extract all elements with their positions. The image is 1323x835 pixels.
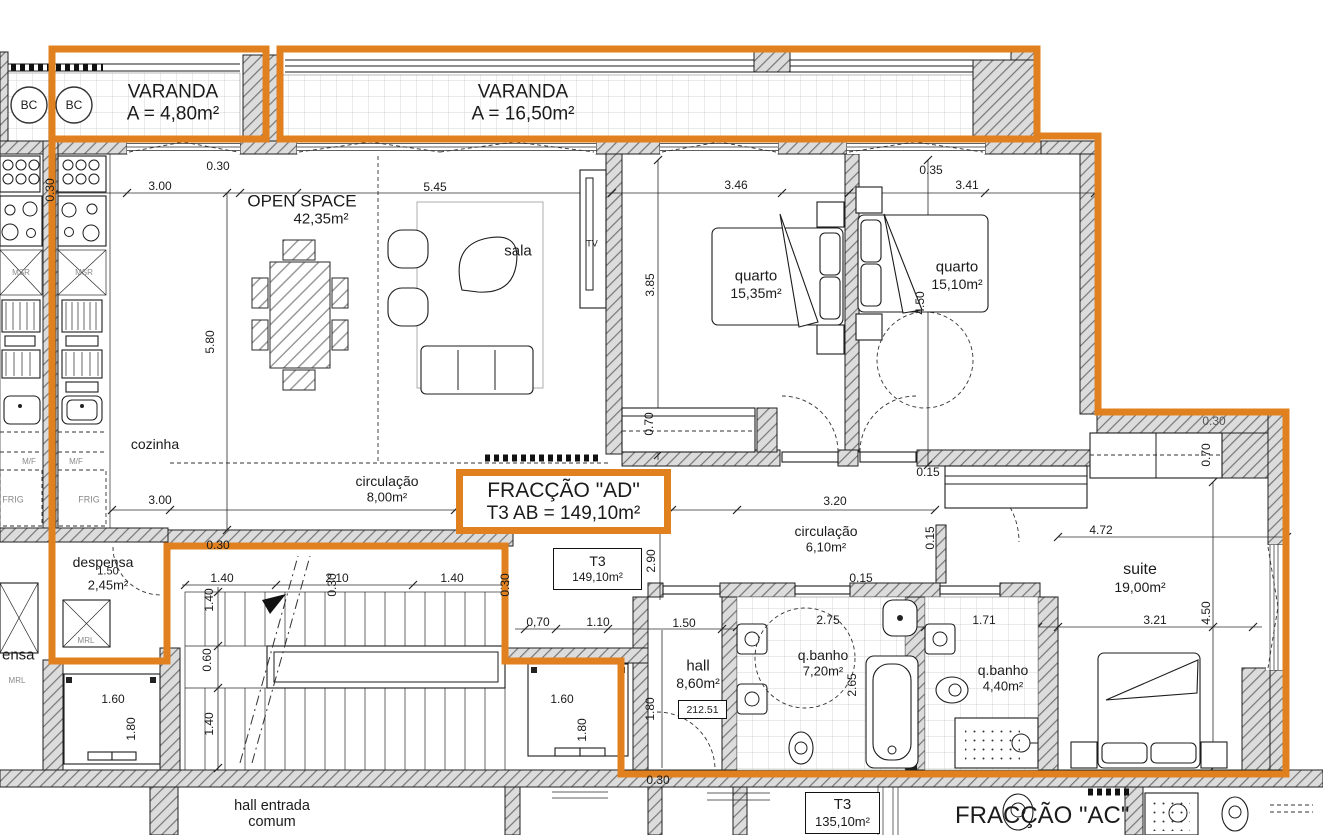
despensa-area: 2,45m² xyxy=(88,579,128,592)
dim-070-q1: 0.70 xyxy=(643,412,655,435)
despensa-neighbor: ensa xyxy=(2,648,35,663)
t3-tag-area: 149,10m² xyxy=(572,570,623,584)
varanda-main-area: A = 16,50m² xyxy=(472,105,575,124)
mf-label-2: M/F xyxy=(22,458,36,466)
dim-top-545: 5.45 xyxy=(423,181,446,193)
fraction-ad-name: FRACÇÃO "AD" xyxy=(487,479,640,503)
dim-450-q2: 4.50 xyxy=(914,291,926,314)
common-hall-label: hall entrada comum xyxy=(234,799,310,831)
mf-label-1: M/F xyxy=(69,458,83,466)
t3-lower-area-tag: T3 135,10m² xyxy=(805,792,880,834)
dim-top-346: 3.46 xyxy=(724,179,747,191)
msr-label-2: MSR xyxy=(12,269,30,277)
dim-top-030: 0.30 xyxy=(206,160,229,172)
cozinha-label: cozinha xyxy=(131,437,179,451)
t3-area-tag: T3 149,10m² xyxy=(553,548,642,590)
common-hall-line1: hall entrada xyxy=(234,799,310,815)
dim-015-c: 0.15 xyxy=(849,572,872,584)
bc-circle-left-label: BC xyxy=(21,99,38,111)
varanda-main-name: VARANDA xyxy=(478,83,568,102)
quarto2-area: 15,10m² xyxy=(931,277,982,291)
sala-label: sala xyxy=(504,244,532,259)
dim-265: 2.65 xyxy=(846,673,858,696)
t3-lower-type: T3 xyxy=(834,796,852,814)
suite-name: suite xyxy=(1123,562,1157,578)
dim-140-b: 1.40 xyxy=(440,572,463,584)
dim-180-l: 1.80 xyxy=(125,717,137,740)
circulacao1-area: 8,00m² xyxy=(367,491,407,504)
dim-top-035: 0.35 xyxy=(919,164,942,176)
dim-450-suite: 4.50 xyxy=(1200,601,1212,624)
t3-lower-area: 135,10m² xyxy=(815,814,870,830)
quarto1-area: 15,35m² xyxy=(730,286,781,300)
dim-210: 2.10 xyxy=(325,572,348,584)
banho2-area: 4,40m² xyxy=(983,680,1023,693)
common-hall-line2: comum xyxy=(234,815,310,831)
tv-label: TV xyxy=(586,240,598,249)
varanda-left-area: A = 4,80m² xyxy=(127,105,219,124)
dim-320: 3.20 xyxy=(823,495,846,507)
dim-580: 5.80 xyxy=(204,330,216,353)
dim-030-left: 0.30 xyxy=(44,178,56,201)
banho2-name: q.banho xyxy=(978,663,1029,677)
dim-top-341: 3.41 xyxy=(955,179,978,191)
dim-140-v1: 1.40 xyxy=(203,588,215,611)
circulacao2-name: circulação xyxy=(794,524,857,538)
floor-plan-sheet: VARANDAA = 4,80m²VARANDAA = 16,50m²OPEN … xyxy=(0,0,1323,835)
frig-label-2: FRIG xyxy=(2,496,24,505)
circulacao1-name: circulação xyxy=(355,474,418,488)
dim-385: 3.85 xyxy=(644,273,656,296)
quarto2-name: quarto xyxy=(936,260,979,275)
hall-name: hall xyxy=(686,659,709,674)
dim-015-b: 0.15 xyxy=(924,526,936,549)
dim-160-l: 1.60 xyxy=(101,693,124,705)
dim-150-desp: 1.50 xyxy=(97,567,118,578)
mrl-label-2: MRL xyxy=(9,677,26,685)
dim-110-hall: 1.10 xyxy=(586,616,609,628)
frig-label-1: FRIG xyxy=(78,496,100,505)
dim-150-hall: 1.50 xyxy=(672,617,695,629)
dim-060: 0.60 xyxy=(201,648,213,671)
dim-290: 2.90 xyxy=(645,549,657,572)
t3-tag-type: T3 xyxy=(589,553,605,570)
dim-140-v2: 1.40 xyxy=(203,712,215,735)
dim-171: 1.71 xyxy=(972,614,995,626)
varanda-left-name: VARANDA xyxy=(128,83,218,102)
dim-180-r: 1.80 xyxy=(576,718,588,741)
dim-275: 2.75 xyxy=(816,614,839,626)
hall-area: 8,60m² xyxy=(676,676,720,690)
msr-label-1: MSR xyxy=(75,269,93,277)
banho1-name: q.banho xyxy=(798,648,849,662)
dim-140-a: 1.40 xyxy=(210,572,233,584)
dim-030-desp: 0.30 xyxy=(206,539,229,551)
open-space-area: 42,35m² xyxy=(293,212,348,227)
dim-070-suite: 0.70 xyxy=(1200,443,1212,466)
circulacao2-area: 6,10m² xyxy=(806,541,846,554)
fraction-ad-title-box: FRACÇÃO "AD" T3 AB = 149,10m² xyxy=(456,469,671,534)
dim-472: 4.72 xyxy=(1089,524,1112,536)
open-space-name: OPEN SPACE xyxy=(247,193,356,210)
dim-015-a: 0.15 xyxy=(916,466,939,478)
fraction-ad-area: T3 AB = 149,10m² xyxy=(487,503,641,525)
dim-070-hall: 0,70 xyxy=(526,616,549,628)
banho1-area: 7,20m² xyxy=(803,665,843,678)
dim-160-r: 1.60 xyxy=(550,693,573,705)
quarto1-name: quarto xyxy=(735,269,778,284)
suite-area: 19,00m² xyxy=(1114,580,1165,594)
dim-321: 3.21 xyxy=(1143,614,1166,626)
labels-layer: VARANDAA = 4,80m²VARANDAA = 16,50m²OPEN … xyxy=(0,0,1323,835)
dim-top-300: 3.00 xyxy=(148,180,171,192)
mrl-label-1: MRL xyxy=(78,637,95,645)
dim-030-bottom: 0.30 xyxy=(646,774,669,786)
level-mark: 212.51 xyxy=(678,700,727,719)
dim-180-hall: 1.80 xyxy=(644,697,656,720)
dim-030-elev: 0.30 xyxy=(499,573,511,596)
dim-030-suite: 0.30 xyxy=(1202,415,1225,427)
bc-circle-right-label: BC xyxy=(66,99,83,111)
dim-300-co: 3.00 xyxy=(148,494,171,506)
fraccao-ac-title: FRACÇÃO "AC" xyxy=(955,802,1129,830)
